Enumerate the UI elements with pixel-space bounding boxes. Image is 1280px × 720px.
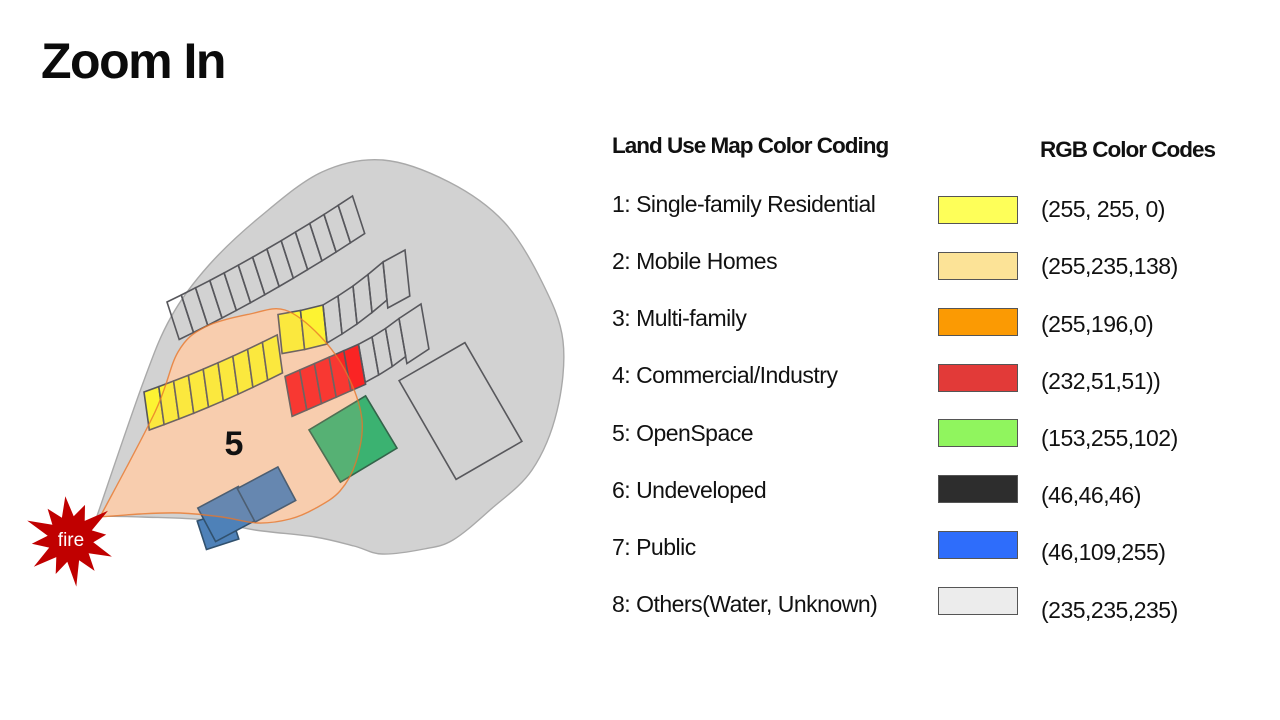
svg-text:fire: fire bbox=[58, 530, 84, 551]
svg-text:5: 5 bbox=[225, 425, 244, 463]
